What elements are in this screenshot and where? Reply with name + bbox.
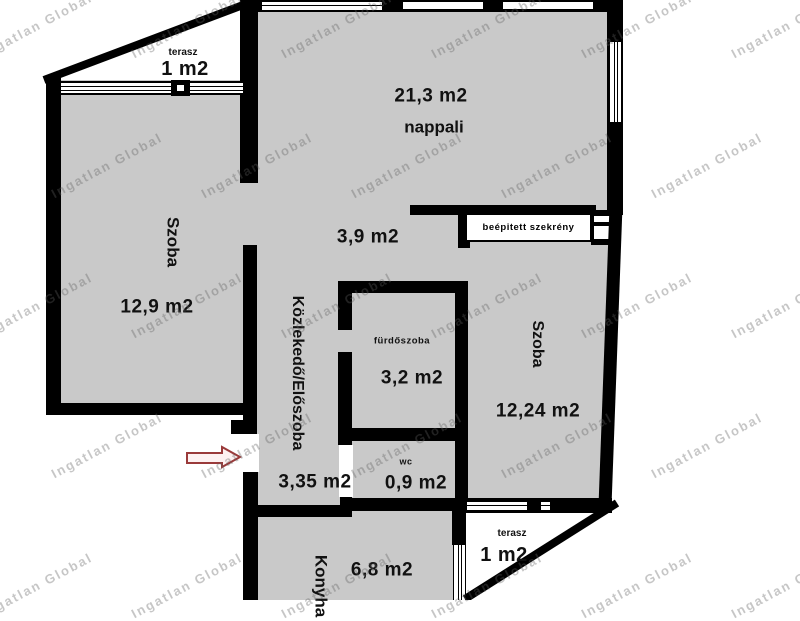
floor-plan: beépitett szekrény terasz 1 m2 21,3 m2 n…: [0, 0, 800, 600]
terasz-bottom-area: 1 m2: [480, 545, 528, 565]
szoba-right-label: Szoba: [529, 320, 545, 367]
terasz-top-area: 1 m2: [161, 59, 209, 79]
entrance-arrow-icon: [187, 447, 240, 467]
floor-plan-page: { "watermark": { "text": "Ingatlan Globa…: [0, 0, 800, 600]
terrace-top-diagonal-wall: [44, 5, 243, 80]
nappali-area: 21,3 m2: [394, 87, 467, 106]
kozlekedo-area: 3,35 m2: [278, 473, 351, 492]
szoba-right-area: 12,24 m2: [496, 402, 580, 421]
corridor-area: 3,9 m2: [337, 228, 399, 247]
konyha-area: 6,8 m2: [351, 561, 413, 580]
terasz-top-label: terasz: [169, 48, 198, 58]
wall-szoba-right-slanted: [605, 206, 616, 506]
konyha-label: Konyha: [313, 555, 330, 617]
wc-label: wc: [399, 458, 412, 467]
furdoszoba-label: fürdőszoba: [374, 336, 430, 346]
kozlekedo-label: Közlekedő/Előszoba: [289, 296, 305, 451]
szoba-left-area: 12,9 m2: [120, 298, 193, 317]
furdoszoba-area: 3,2 m2: [381, 369, 443, 388]
szoba-left-label: Szoba: [165, 217, 182, 267]
wc-area: 0,9 m2: [385, 474, 447, 493]
nappali-label: nappali: [404, 119, 464, 136]
terasz-bottom-label: terasz: [498, 529, 527, 539]
